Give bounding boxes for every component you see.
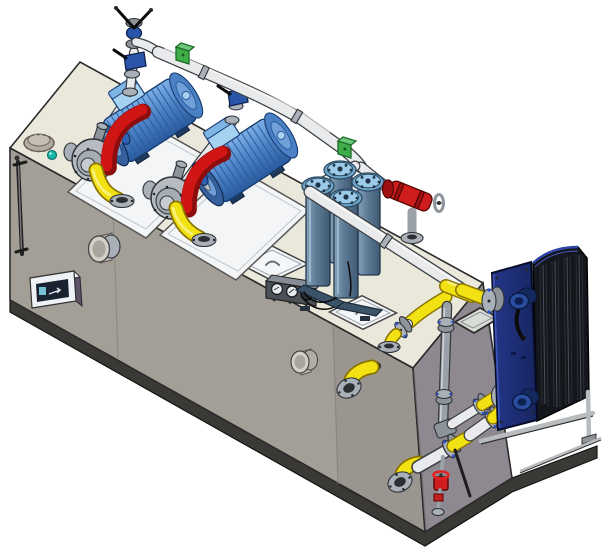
cad-render-canvas: [0, 0, 605, 547]
pressure-gauge: [287, 286, 298, 297]
hx-plate-pack: [533, 247, 589, 421]
tank-return-flange: [378, 342, 400, 353]
pressure-gauge: [272, 284, 283, 295]
filter-cap: [352, 173, 384, 191]
display-digits: [39, 287, 46, 295]
vent-cap: [24, 134, 54, 152]
check-valve: [124, 52, 146, 70]
filter-cap: [324, 161, 356, 179]
breather-cap: [48, 151, 57, 160]
skid-render: [0, 0, 605, 547]
valve-handwheel: [435, 195, 444, 212]
